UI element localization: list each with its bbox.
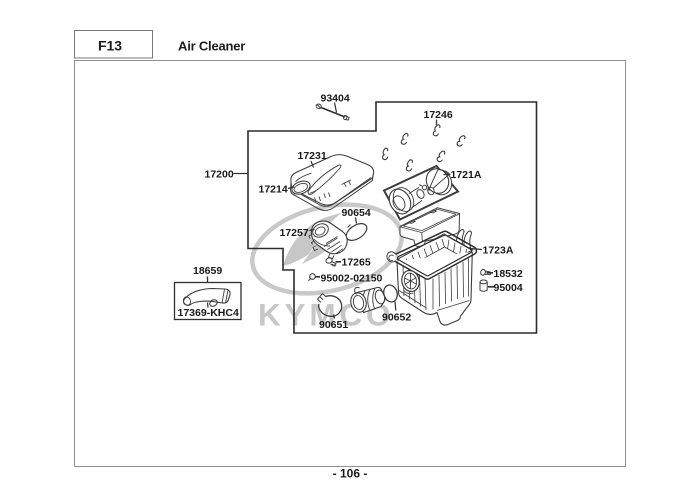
svg-text:95004: 95004: [494, 282, 523, 294]
svg-text:- 106 -: - 106 -: [333, 467, 368, 481]
svg-text:17231: 17231: [298, 150, 327, 162]
svg-text:90651: 90651: [319, 319, 348, 331]
svg-text:90654: 90654: [342, 207, 371, 219]
svg-text:93404: 93404: [321, 93, 350, 105]
svg-text:18532: 18532: [494, 268, 523, 280]
svg-text:17200: 17200: [205, 169, 234, 181]
svg-text:1723A: 1723A: [483, 245, 514, 257]
svg-text:90652: 90652: [382, 312, 411, 324]
svg-text:Air Cleaner: Air Cleaner: [178, 39, 245, 54]
svg-text:F13: F13: [98, 38, 122, 54]
svg-text:17257: 17257: [280, 227, 309, 239]
svg-text:17265: 17265: [342, 257, 371, 269]
svg-text:18659: 18659: [193, 265, 222, 277]
svg-text:17369-KHC4: 17369-KHC4: [178, 307, 239, 319]
svg-text:95002-02150: 95002-02150: [321, 273, 383, 285]
svg-text:1721A: 1721A: [451, 169, 482, 181]
svg-text:17246: 17246: [424, 109, 453, 121]
svg-text:17214: 17214: [259, 184, 288, 196]
